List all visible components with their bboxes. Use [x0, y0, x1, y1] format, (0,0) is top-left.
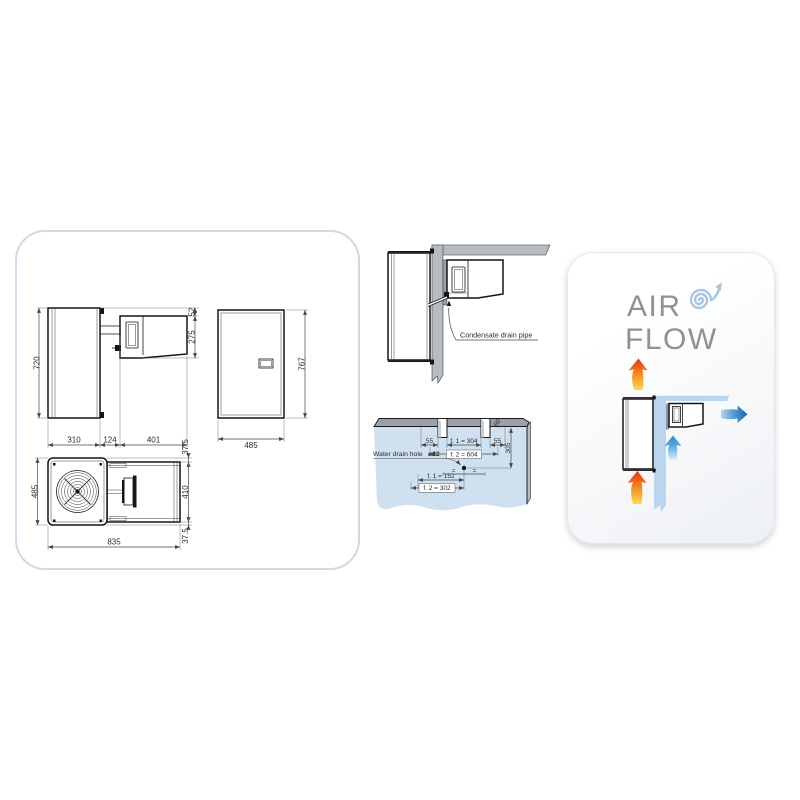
spec-sheet: 720 310 124 401 52 275	[0, 0, 800, 800]
condensate-diagram: Condensate drain pipe	[378, 232, 558, 402]
equal-mark-right: =	[473, 468, 477, 475]
dim-offset-52: 52	[188, 307, 197, 316]
drain-hole-diagram: 55 f. 1 = 304 55 f. 2 = 604 60 305 = = f…	[371, 414, 546, 529]
mounting-slot-left	[438, 419, 447, 438]
hole-diameter-label: ø22	[428, 451, 440, 458]
dimensions-panel: 720 310 124 401 52 275	[15, 230, 360, 570]
dim-width-485: 485	[244, 441, 258, 450]
wall-plan	[374, 419, 531, 511]
dim-f1-304: f. 1 = 304	[450, 438, 478, 445]
dim-inset-bottom-37-5: 37.5	[181, 528, 190, 544]
condensate-callout: Condensate drain pipe	[447, 301, 538, 341]
dim-depth-410: 410	[181, 485, 190, 499]
airflow-card: AIR FLOW	[567, 252, 775, 544]
dim-height-767: 767	[298, 357, 307, 371]
dim-depth-485: 485	[31, 484, 40, 498]
swirl-icon	[691, 283, 722, 309]
top-view-unit	[48, 458, 180, 525]
front-view-unit	[218, 310, 284, 418]
condensate-drain-pipe-label: Condensate drain pipe	[460, 331, 532, 340]
dim-height-720: 720	[33, 356, 42, 370]
dim-f2-604: f. 2 = 604	[450, 451, 478, 458]
wall-mounted-unit	[388, 249, 503, 365]
drain-hole-dot	[462, 466, 466, 470]
water-drain-hole-label: Water drain hole	[373, 451, 423, 458]
dim-slot-left-55: 55	[426, 438, 434, 445]
callout-arrowhead	[447, 301, 451, 307]
dim-f2-302: f. 2 = 302	[423, 485, 451, 492]
hot-air-up-arrow-bottom	[628, 471, 647, 504]
mounting-slot-right	[481, 419, 490, 438]
airflow-diagram: AIR FLOW	[568, 253, 774, 543]
cold-air-up-arrow	[665, 436, 682, 461]
dim-height-275: 275	[188, 330, 197, 344]
cold-air-out-arrow	[721, 406, 748, 424]
dim-depth-305: 305	[505, 442, 512, 453]
dim-inset-top-37-5: 37.5	[181, 439, 190, 455]
dim-width-835: 835	[107, 538, 121, 547]
front-view-drawing: 485 767	[205, 295, 325, 450]
side-view-unit	[48, 308, 187, 418]
top-view-drawing: 485 835 37.5 410 37.5	[28, 428, 213, 563]
airflow-title-flow: FLOW	[625, 323, 718, 356]
dim-slot-right-55: 55	[494, 438, 502, 445]
dim-f1-152: f. 1 = 152	[427, 473, 455, 480]
airflow-title-air: AIR	[627, 290, 682, 323]
hot-air-up-arrow-top	[629, 359, 648, 391]
